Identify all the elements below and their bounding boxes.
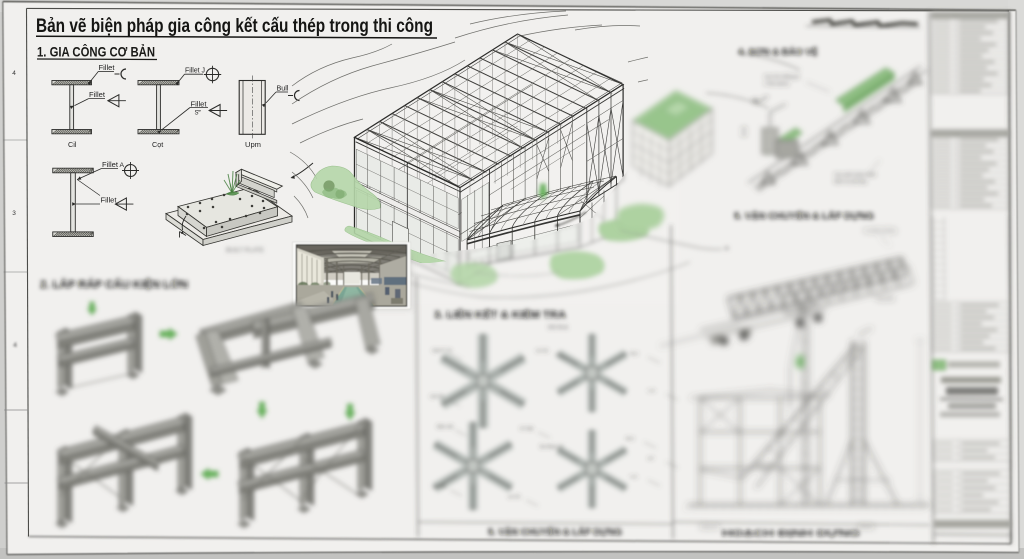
svg-text:Cẩu 50T: Cẩu 50T xyxy=(758,461,776,467)
svg-text:L.K.: L.K. xyxy=(630,474,638,479)
svg-text:DO B.A: DO B.A xyxy=(548,325,569,331)
svg-text:Bản mã: Bản mã xyxy=(437,424,453,429)
svg-text:M.C: M.C xyxy=(626,436,635,441)
svg-text:M.C: M.C xyxy=(630,351,639,356)
svg-text:Cọt: Cọt xyxy=(152,140,163,149)
svg-text:Upm: Upm xyxy=(245,140,261,149)
svg-text:3. LIÊN KẾT & KIỂM TRA: 3. LIÊN KẾT & KIỂM TRA xyxy=(434,308,566,321)
svg-text:4: 4 xyxy=(12,70,16,77)
svg-text:Fillet J: Fillet J xyxy=(185,68,205,75)
svg-text:Sơn phủ hoàn thiện: Sơn phủ hoàn thiện xyxy=(834,171,876,178)
svg-text:2. LẮP RÁP CẤU KIỆN LỚN: 2. LẮP RÁP CẤU KIỆN LỚN xyxy=(40,278,188,291)
svg-text:Tháp dẫn: Tháp dẫn xyxy=(875,295,895,301)
svg-text:A: A xyxy=(120,162,125,169)
svg-text:1. GIA CÔNG CƠ BẢN: 1. GIA CÔNG CƠ BẢN xyxy=(37,44,155,59)
svg-text:2 lớp epoxy: 2 lớp epoxy xyxy=(764,81,790,87)
svg-text:BUILT PLATE: BUILT PLATE xyxy=(226,248,264,254)
svg-text:CB-KT 01: CB-KT 01 xyxy=(432,348,453,353)
svg-text:HOẠCH ĐỊNH DỰNG: HOẠCH ĐỊNH DỰNG xyxy=(722,528,861,538)
svg-text:KT: KT xyxy=(648,456,654,461)
svg-text:LK 04: LK 04 xyxy=(508,494,520,499)
svg-text:5. VẬN CHUYỂN & LẮP DỰNG: 5. VẬN CHUYỂN & LẮP DỰNG xyxy=(488,526,622,537)
svg-text:Bản vẽ biện pháp gia công kết: Bản vẽ biện pháp gia công kết cấu thép t… xyxy=(36,15,433,37)
svg-text:4. SƠN & BẢO VỆ: 4. SƠN & BẢO VỆ xyxy=(738,46,818,58)
svg-text:Bull: Bull xyxy=(277,86,289,93)
svg-text:5. VẬN CHUYỂN & LẮP DỰNG: 5. VẬN CHUYỂN & LẮP DỰNG xyxy=(734,210,874,222)
svg-text:Dựng cột: Dựng cột xyxy=(700,524,720,529)
svg-text:Chi tiết: Chi tiết xyxy=(430,394,445,399)
svg-text:L.K.: L.K. xyxy=(648,388,656,393)
svg-text:LK 02: LK 02 xyxy=(536,348,548,353)
svg-text:Cil: Cil xyxy=(68,140,77,149)
svg-text:LD: LD xyxy=(741,132,748,137)
svg-text:4: 4 xyxy=(13,342,17,349)
svg-text:Bu lông 8.8: Bu lông 8.8 xyxy=(540,444,564,449)
svg-text:kiểm tra độ dày: kiểm tra độ dày xyxy=(834,178,867,185)
svg-text:LD: LD xyxy=(741,126,748,131)
svg-text:S‴: S‴ xyxy=(195,111,202,117)
svg-text:Chi tiết: Chi tiết xyxy=(432,484,447,489)
svg-text:Sơn lót chống gỉ: Sơn lót chống gỉ xyxy=(764,73,800,80)
svg-text:Fillet: Fillet xyxy=(101,198,117,205)
svg-text:3: 3 xyxy=(12,210,16,217)
svg-text:Xe siêu trường: Xe siêu trường xyxy=(864,228,896,234)
svg-text:Fillet: Fillet xyxy=(102,162,118,169)
svg-text:Fillet: Fillet xyxy=(89,92,105,99)
svg-text:Fillet: Fillet xyxy=(191,102,207,109)
svg-text:Fillet: Fillet xyxy=(99,65,115,72)
svg-text:KT bội: KT bội xyxy=(520,426,533,431)
